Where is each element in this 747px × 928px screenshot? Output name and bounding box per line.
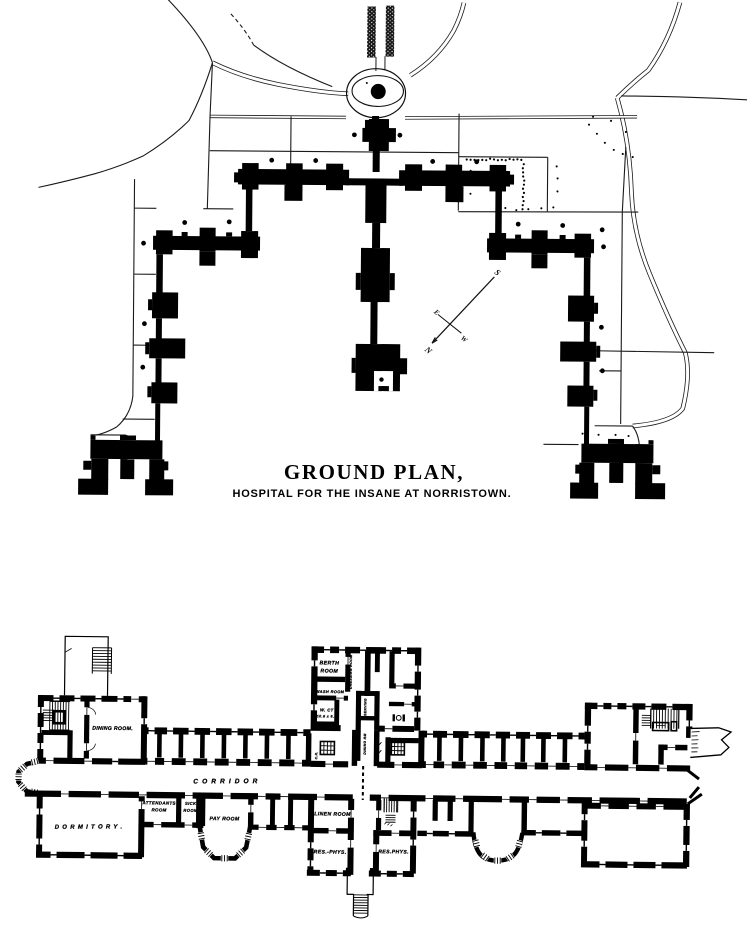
svg-text:ATTENDANTS: ATTENDANTS bbox=[141, 800, 175, 805]
svg-text:10.6 x 6.9: 10.6 x 6.9 bbox=[317, 714, 337, 718]
svg-text:C O R R I D O R: C O R R I D O R bbox=[193, 778, 258, 785]
svg-text:BERTH: BERTH bbox=[319, 660, 339, 666]
svg-text:WASH ROOM: WASH ROOM bbox=[316, 689, 345, 694]
svg-text:SICK: SICK bbox=[185, 801, 197, 806]
svg-text:RES.-PHYS.: RES.-PHYS. bbox=[314, 849, 347, 855]
svg-text:DINING ROOM.: DINING ROOM. bbox=[92, 726, 133, 732]
svg-text:DINING RM: DINING RM bbox=[363, 733, 367, 754]
svg-text:ROOM: ROOM bbox=[183, 808, 198, 813]
svg-text:D O R M I T O R Y .: D O R M I T O R Y . bbox=[55, 824, 123, 830]
svg-text:ROOM: ROOM bbox=[151, 807, 166, 812]
svg-text:SERVING: SERVING bbox=[363, 698, 367, 716]
svg-text:DRESSING ROOM: DRESSING ROOM bbox=[349, 655, 353, 689]
svg-text:LINEN ROOM: LINEN ROOM bbox=[314, 811, 351, 817]
svg-text:ROOM: ROOM bbox=[320, 668, 338, 674]
svg-text:PAY ROOM: PAY ROOM bbox=[209, 816, 240, 822]
svg-text:W. CT: W. CT bbox=[320, 707, 334, 712]
svg-text:RES.PHYS.: RES.PHYS. bbox=[378, 849, 409, 855]
svg-text:C.R.: C.R. bbox=[314, 751, 318, 759]
svg-text:GROUND PLAN,: GROUND PLAN, bbox=[284, 460, 464, 484]
svg-text:HOSPITAL FOR THE INSANE AT NOR: HOSPITAL FOR THE INSANE AT NORRISTOWN. bbox=[233, 488, 512, 500]
